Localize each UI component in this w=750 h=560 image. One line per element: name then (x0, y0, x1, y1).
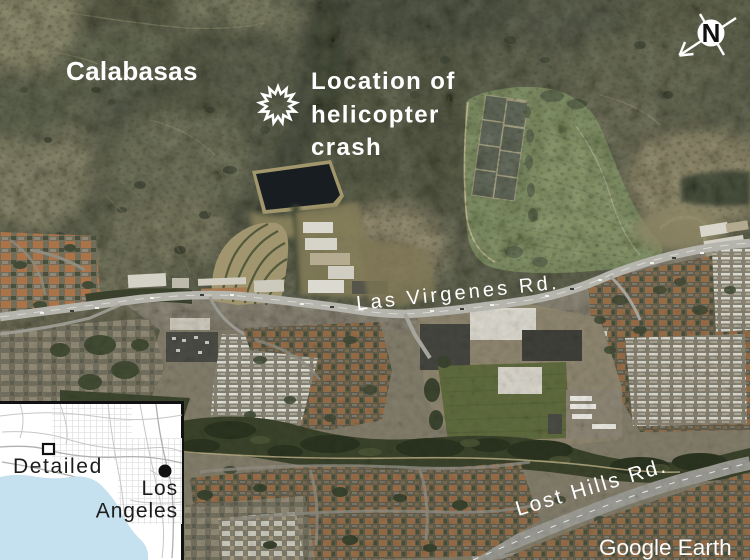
svg-text:crash: crash (311, 134, 382, 161)
svg-text:N: N (702, 18, 721, 48)
svg-text:Angeles: Angeles (96, 500, 178, 523)
svg-text:Detailed: Detailed (13, 455, 103, 478)
svg-text:Location of: Location of (311, 68, 456, 95)
svg-text:Google Earth: Google Earth (599, 535, 732, 560)
svg-text:Los: Los (141, 477, 178, 500)
svg-text:Calabasas: Calabasas (66, 56, 198, 86)
svg-text:helicopter: helicopter (311, 102, 440, 129)
